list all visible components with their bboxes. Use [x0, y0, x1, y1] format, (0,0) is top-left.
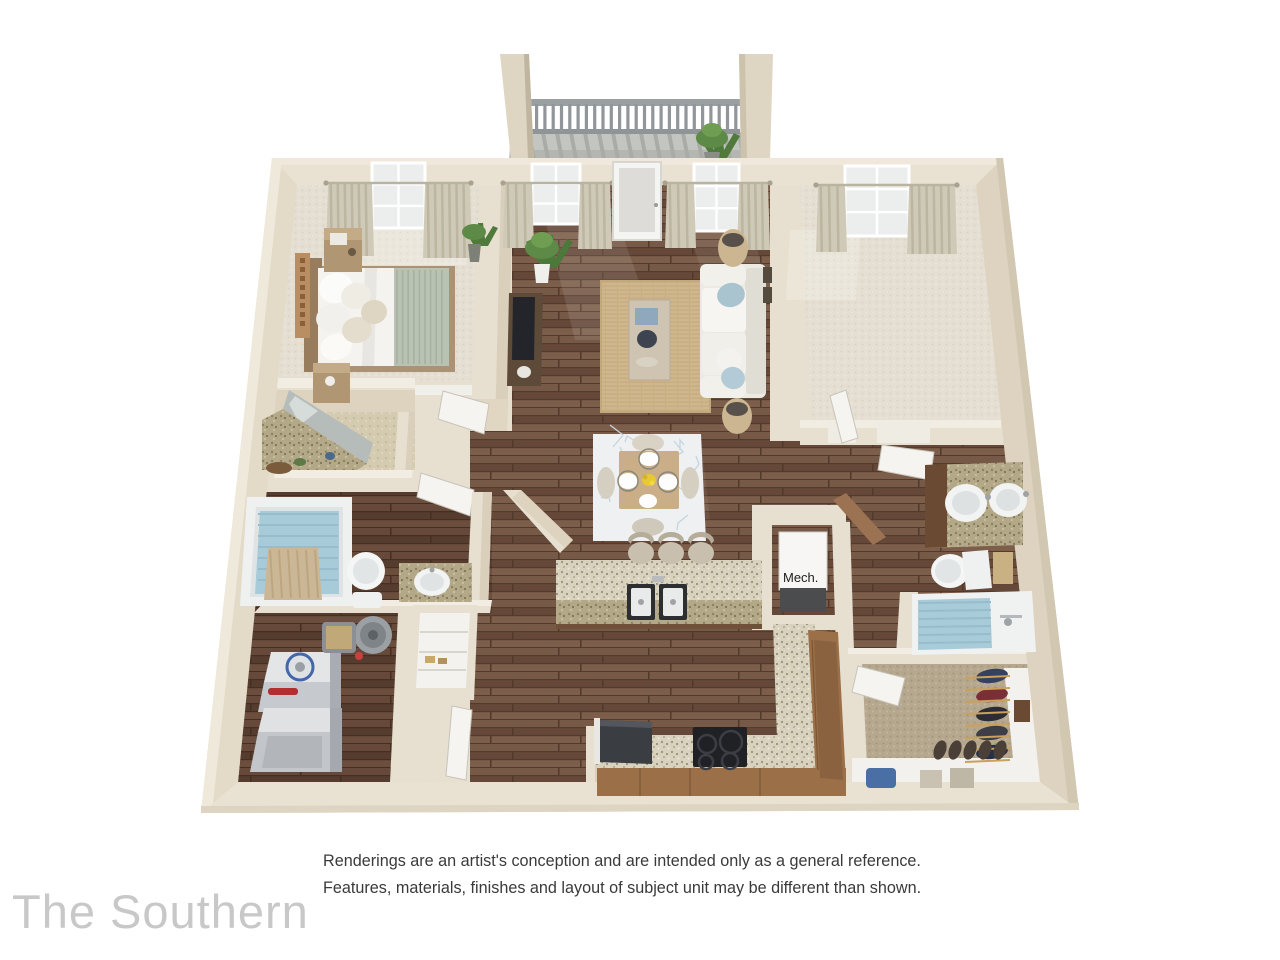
svg-text:Renderings are an artist's con: Renderings are an artist's conception an…	[323, 852, 921, 870]
svg-text:Features, materials, finishes: Features, materials, finishes and layout…	[323, 879, 921, 897]
svg-text:Mech.: Mech.	[783, 570, 818, 585]
svg-text:The Southern: The Southern	[12, 885, 309, 938]
